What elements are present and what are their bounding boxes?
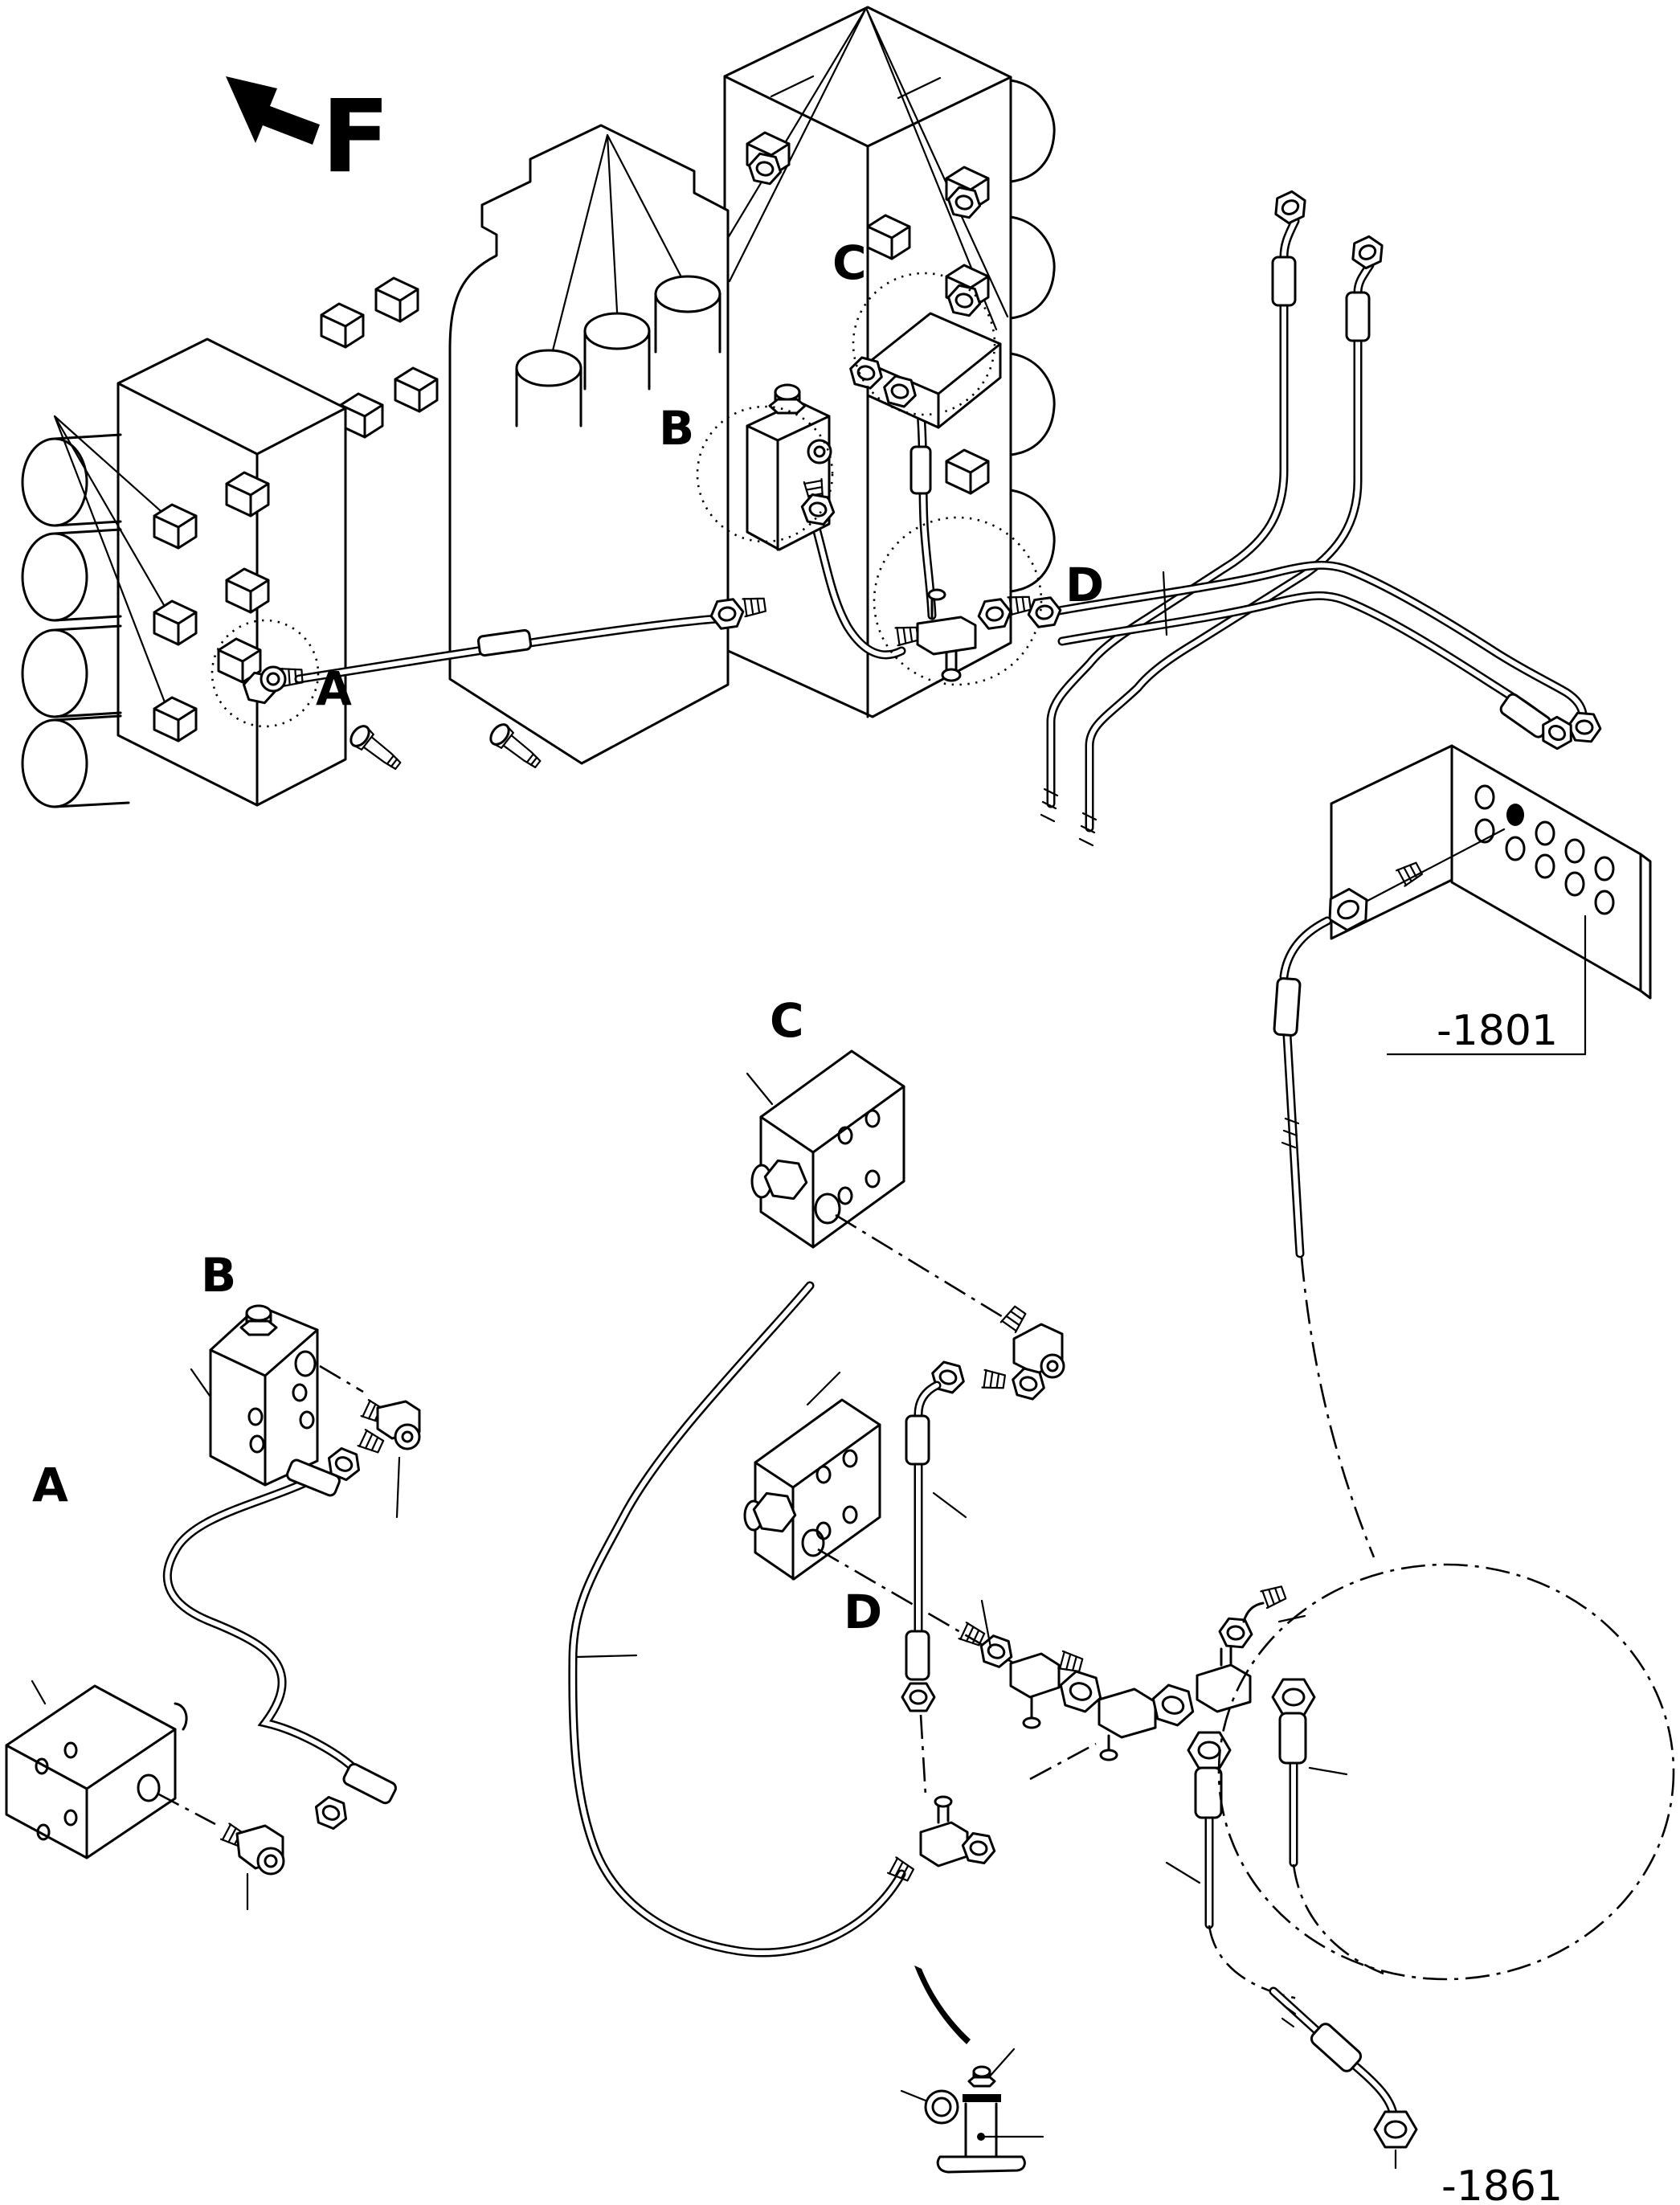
assembly-callout-c: C xyxy=(832,235,867,290)
assembly-callout-b: B xyxy=(659,401,694,456)
assembly-callout-a: A xyxy=(316,661,352,716)
detail-label-b: B xyxy=(201,1248,236,1303)
detail-label-c: C xyxy=(770,993,804,1048)
detail-label-d: D xyxy=(844,1585,882,1639)
part-ref-1801: -1801 xyxy=(1437,1007,1558,1055)
assembly-callout-d: D xyxy=(1065,558,1104,612)
part-ref-1861: -1861 xyxy=(1441,2162,1563,2205)
view-direction-label: F xyxy=(321,79,390,195)
diagram-page: F xyxy=(0,0,1680,2205)
detail-label-a: A xyxy=(32,1458,68,1512)
parts-diagram-canvas: F xyxy=(0,0,1680,2205)
marked-hole xyxy=(1506,804,1524,826)
